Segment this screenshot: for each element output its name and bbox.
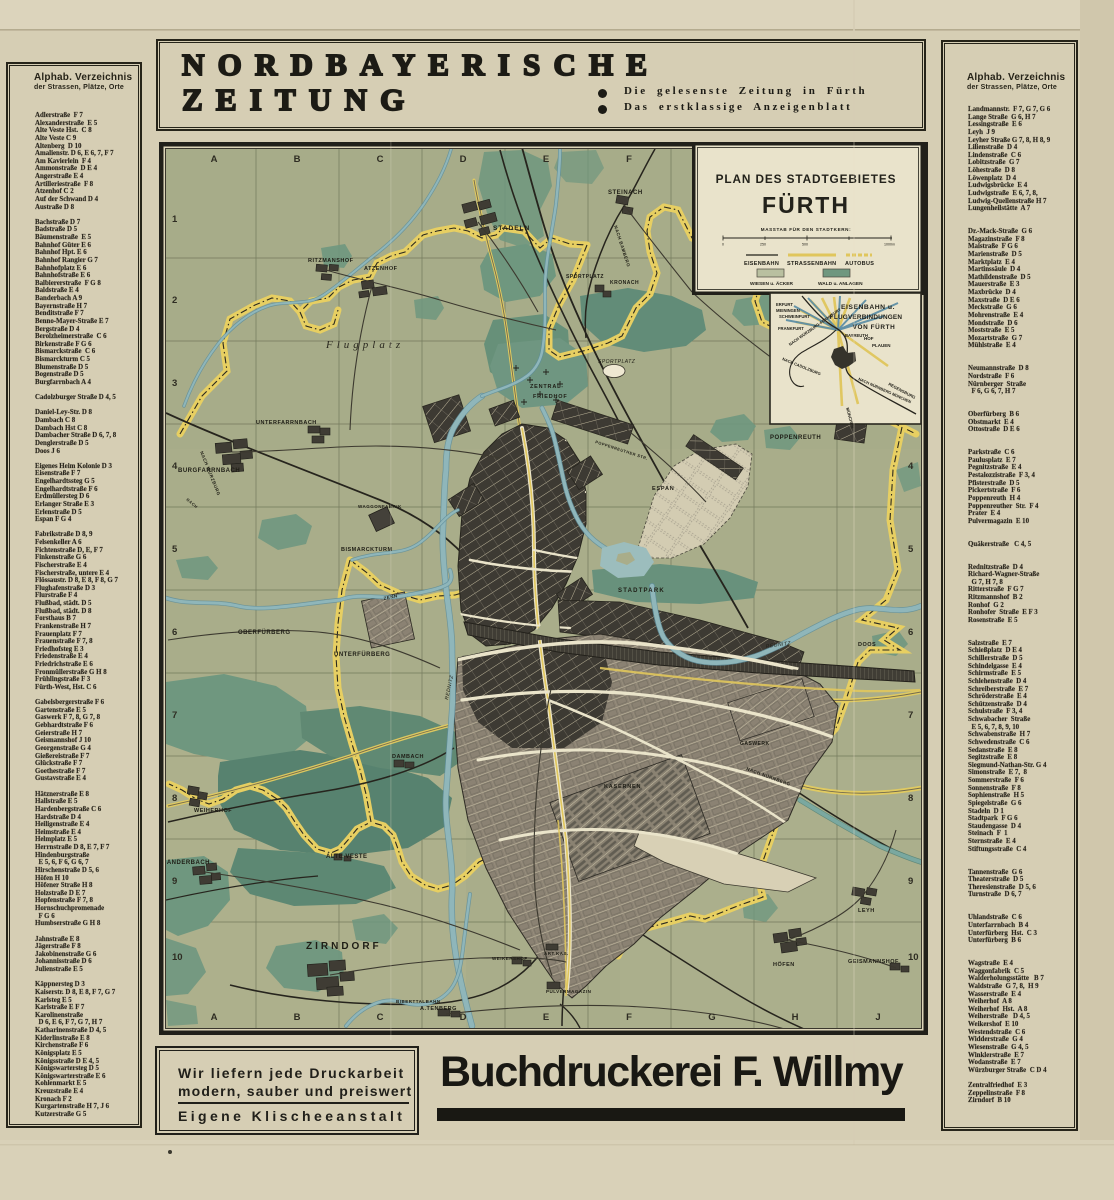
svg-text:UNTERFÜRBERG: UNTERFÜRBERG xyxy=(334,651,390,658)
svg-text:PLAUEN: PLAUEN xyxy=(872,343,891,348)
svg-text:E: E xyxy=(543,154,549,165)
svg-text:PLAN DES STADTGEBIETES: PLAN DES STADTGEBIETES xyxy=(716,172,897,186)
svg-text:FLUGVERBINDUNGEN: FLUGVERBINDUNGEN xyxy=(830,314,903,321)
svg-text:0: 0 xyxy=(722,243,724,247)
svg-text:GEISMANNSHOF: GEISMANNSHOF xyxy=(848,959,899,965)
svg-text:STADELN: STADELN xyxy=(493,225,530,232)
svg-text:3: 3 xyxy=(172,378,177,389)
svg-text:9: 9 xyxy=(172,876,177,887)
svg-text:DAMBACH: DAMBACH xyxy=(392,754,424,760)
svg-text:ATZENHOF: ATZENHOF xyxy=(364,266,398,272)
svg-text:LEYH: LEYH xyxy=(858,908,875,914)
svg-text:HÖFEN: HÖFEN xyxy=(773,961,795,968)
svg-text:A: A xyxy=(211,154,218,165)
svg-text:D: D xyxy=(460,1012,467,1023)
svg-text:C: C xyxy=(377,154,384,165)
svg-text:6: 6 xyxy=(172,627,177,638)
svg-text:B: B xyxy=(294,154,301,165)
svg-text:4: 4 xyxy=(908,461,914,472)
svg-text:STADTPARK: STADTPARK xyxy=(618,588,665,594)
svg-text:FRANKFURT: FRANKFURT xyxy=(778,326,804,331)
svg-text:UNTERFARRNBACH: UNTERFARRNBACH xyxy=(256,420,317,426)
svg-text:SPORTPLATZ: SPORTPLATZ xyxy=(598,359,636,365)
svg-text:5: 5 xyxy=(172,544,178,555)
svg-text:OBERFÜRBERG: OBERFÜRBERG xyxy=(238,629,291,636)
svg-text:WAGGONFABRIK: WAGGONFABRIK xyxy=(358,504,402,509)
svg-text:STEINACH: STEINACH xyxy=(608,190,643,196)
svg-text:VON FÜRTH: VON FÜRTH xyxy=(853,322,896,331)
svg-text:WIESEN u. ÄCKER: WIESEN u. ÄCKER xyxy=(750,280,793,287)
svg-text:PULVERMAGAZIN: PULVERMAGAZIN xyxy=(546,989,591,994)
svg-text:7: 7 xyxy=(172,710,177,721)
svg-text:5: 5 xyxy=(908,544,914,555)
svg-text:GASWERK: GASWERK xyxy=(740,741,770,747)
svg-text:F: F xyxy=(626,1012,632,1023)
svg-text:KRONACH: KRONACH xyxy=(610,280,639,286)
svg-text:Flugplatz: Flugplatz xyxy=(325,339,404,351)
svg-text:10: 10 xyxy=(172,952,183,963)
svg-text:B: B xyxy=(294,1012,301,1023)
svg-text:KASERNEN: KASERNEN xyxy=(604,784,641,790)
svg-text:DOOS: DOOS xyxy=(858,642,876,648)
svg-text:ESPAN: ESPAN xyxy=(652,486,675,492)
svg-text:EISENBAHN u.: EISENBAHN u. xyxy=(841,304,895,311)
svg-text:9: 9 xyxy=(908,876,913,887)
svg-text:SCHWEINFURT: SCHWEINFURT xyxy=(779,314,810,319)
svg-text:ZIRNDORF: ZIRNDORF xyxy=(306,941,382,952)
svg-text:POPPENREUTH: POPPENREUTH xyxy=(770,435,821,441)
svg-text:AUTOBUS: AUTOBUS xyxy=(845,261,874,267)
svg-text:10: 10 xyxy=(908,952,919,963)
svg-text:SPORTPLATZ: SPORTPLATZ xyxy=(566,274,604,280)
svg-text:BANDERBACH: BANDERBACH xyxy=(162,860,210,866)
svg-text:E: E xyxy=(543,1012,549,1023)
svg-text:7: 7 xyxy=(908,710,913,721)
svg-text:WALD u. ANLAGEN: WALD u. ANLAGEN xyxy=(818,281,863,287)
svg-text:FRIEDHOF: FRIEDHOF xyxy=(533,394,568,400)
svg-text:WEIKERSHOF: WEIKERSHOF xyxy=(492,956,528,961)
svg-text:C: C xyxy=(377,1012,384,1023)
svg-text:D: D xyxy=(460,154,467,165)
svg-text:ERFURT: ERFURT xyxy=(776,302,793,307)
svg-text:8: 8 xyxy=(908,793,913,804)
svg-text:ART.KAS.: ART.KAS. xyxy=(544,951,569,956)
svg-text:BISMARCKTURM: BISMARCKTURM xyxy=(341,547,393,553)
svg-text:A: A xyxy=(211,1012,218,1023)
svg-text:250: 250 xyxy=(760,243,766,247)
svg-text:STRASSENBAHN: STRASSENBAHN xyxy=(787,261,836,267)
svg-text:A.TENBERG: A.TENBERG xyxy=(420,1006,457,1012)
svg-text:ALTE VESTE: ALTE VESTE xyxy=(326,854,368,860)
svg-text:WEIHERHOF: WEIHERHOF xyxy=(194,808,232,814)
svg-text:EISENBAHN: EISENBAHN xyxy=(744,261,779,267)
svg-text:BIBERTTALBAHN: BIBERTTALBAHN xyxy=(396,999,441,1004)
svg-text:2: 2 xyxy=(172,295,177,306)
svg-text:1000m: 1000m xyxy=(884,243,895,247)
svg-text:F: F xyxy=(626,154,632,165)
svg-text:H: H xyxy=(792,1012,799,1023)
svg-text:FÜRTH: FÜRTH xyxy=(762,192,850,218)
svg-text:MEININGEN: MEININGEN xyxy=(776,308,800,313)
svg-text:RITZMANSHOF: RITZMANSHOF xyxy=(308,258,354,264)
svg-text:6: 6 xyxy=(908,627,913,638)
svg-text:G: G xyxy=(708,1012,715,1023)
svg-text:MASSTAB FÜR DEN STADTKERN:: MASSTAB FÜR DEN STADTKERN: xyxy=(761,226,851,232)
svg-text:BAYREUTH: BAYREUTH xyxy=(845,333,868,338)
svg-text:1: 1 xyxy=(172,214,178,225)
svg-text:J: J xyxy=(875,1012,880,1023)
svg-text:500: 500 xyxy=(802,243,808,247)
svg-text:8: 8 xyxy=(172,793,177,804)
svg-text:ZENTRAL-: ZENTRAL- xyxy=(530,384,564,390)
